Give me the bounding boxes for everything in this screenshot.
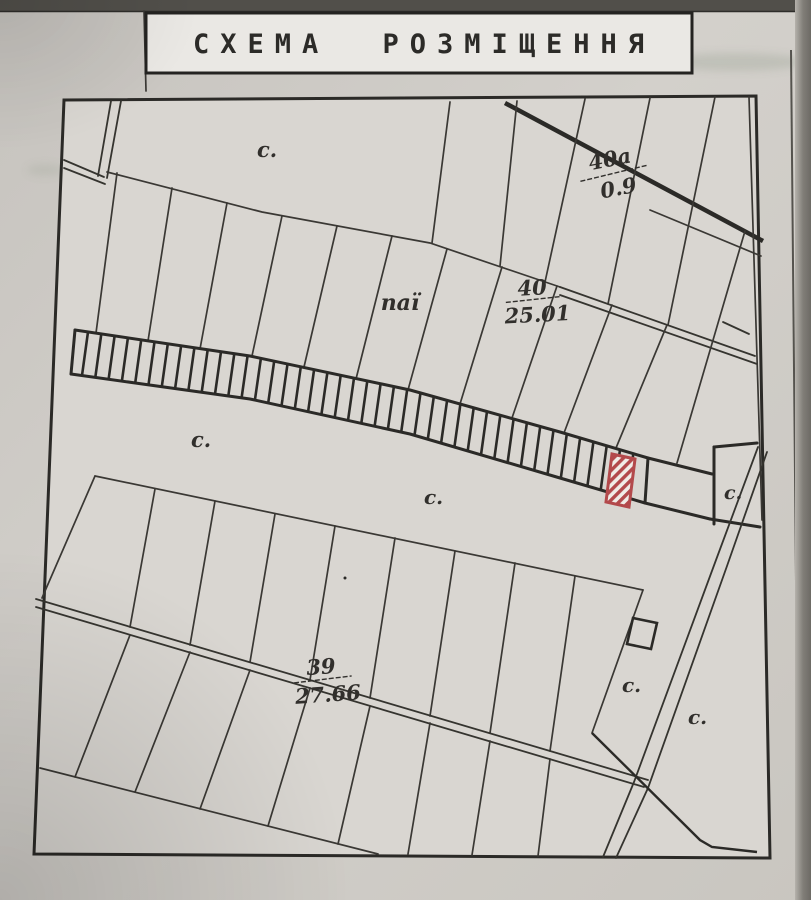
vignette-top-left	[0, 0, 400, 300]
road-notch	[627, 618, 657, 649]
parcel-40-area: 25.01	[503, 300, 571, 328]
vignette-bottom-left	[0, 400, 500, 900]
scanned-site-plan-page: СХЕМА РОЗМІЩЕННЯ	[0, 0, 811, 900]
site-plan-map: СХЕМА РОЗМІЩЕННЯ	[0, 0, 811, 900]
highlighted-parcel	[606, 454, 635, 507]
photo-right-edge	[795, 0, 811, 900]
parcel-40-number: 40	[517, 274, 548, 301]
pasture-label-right-cell: с.	[724, 482, 742, 504]
pasture-label-bottom-right-of-road: с.	[688, 705, 707, 729]
pasture-label-bottom-left-of-road: с.	[622, 673, 641, 697]
